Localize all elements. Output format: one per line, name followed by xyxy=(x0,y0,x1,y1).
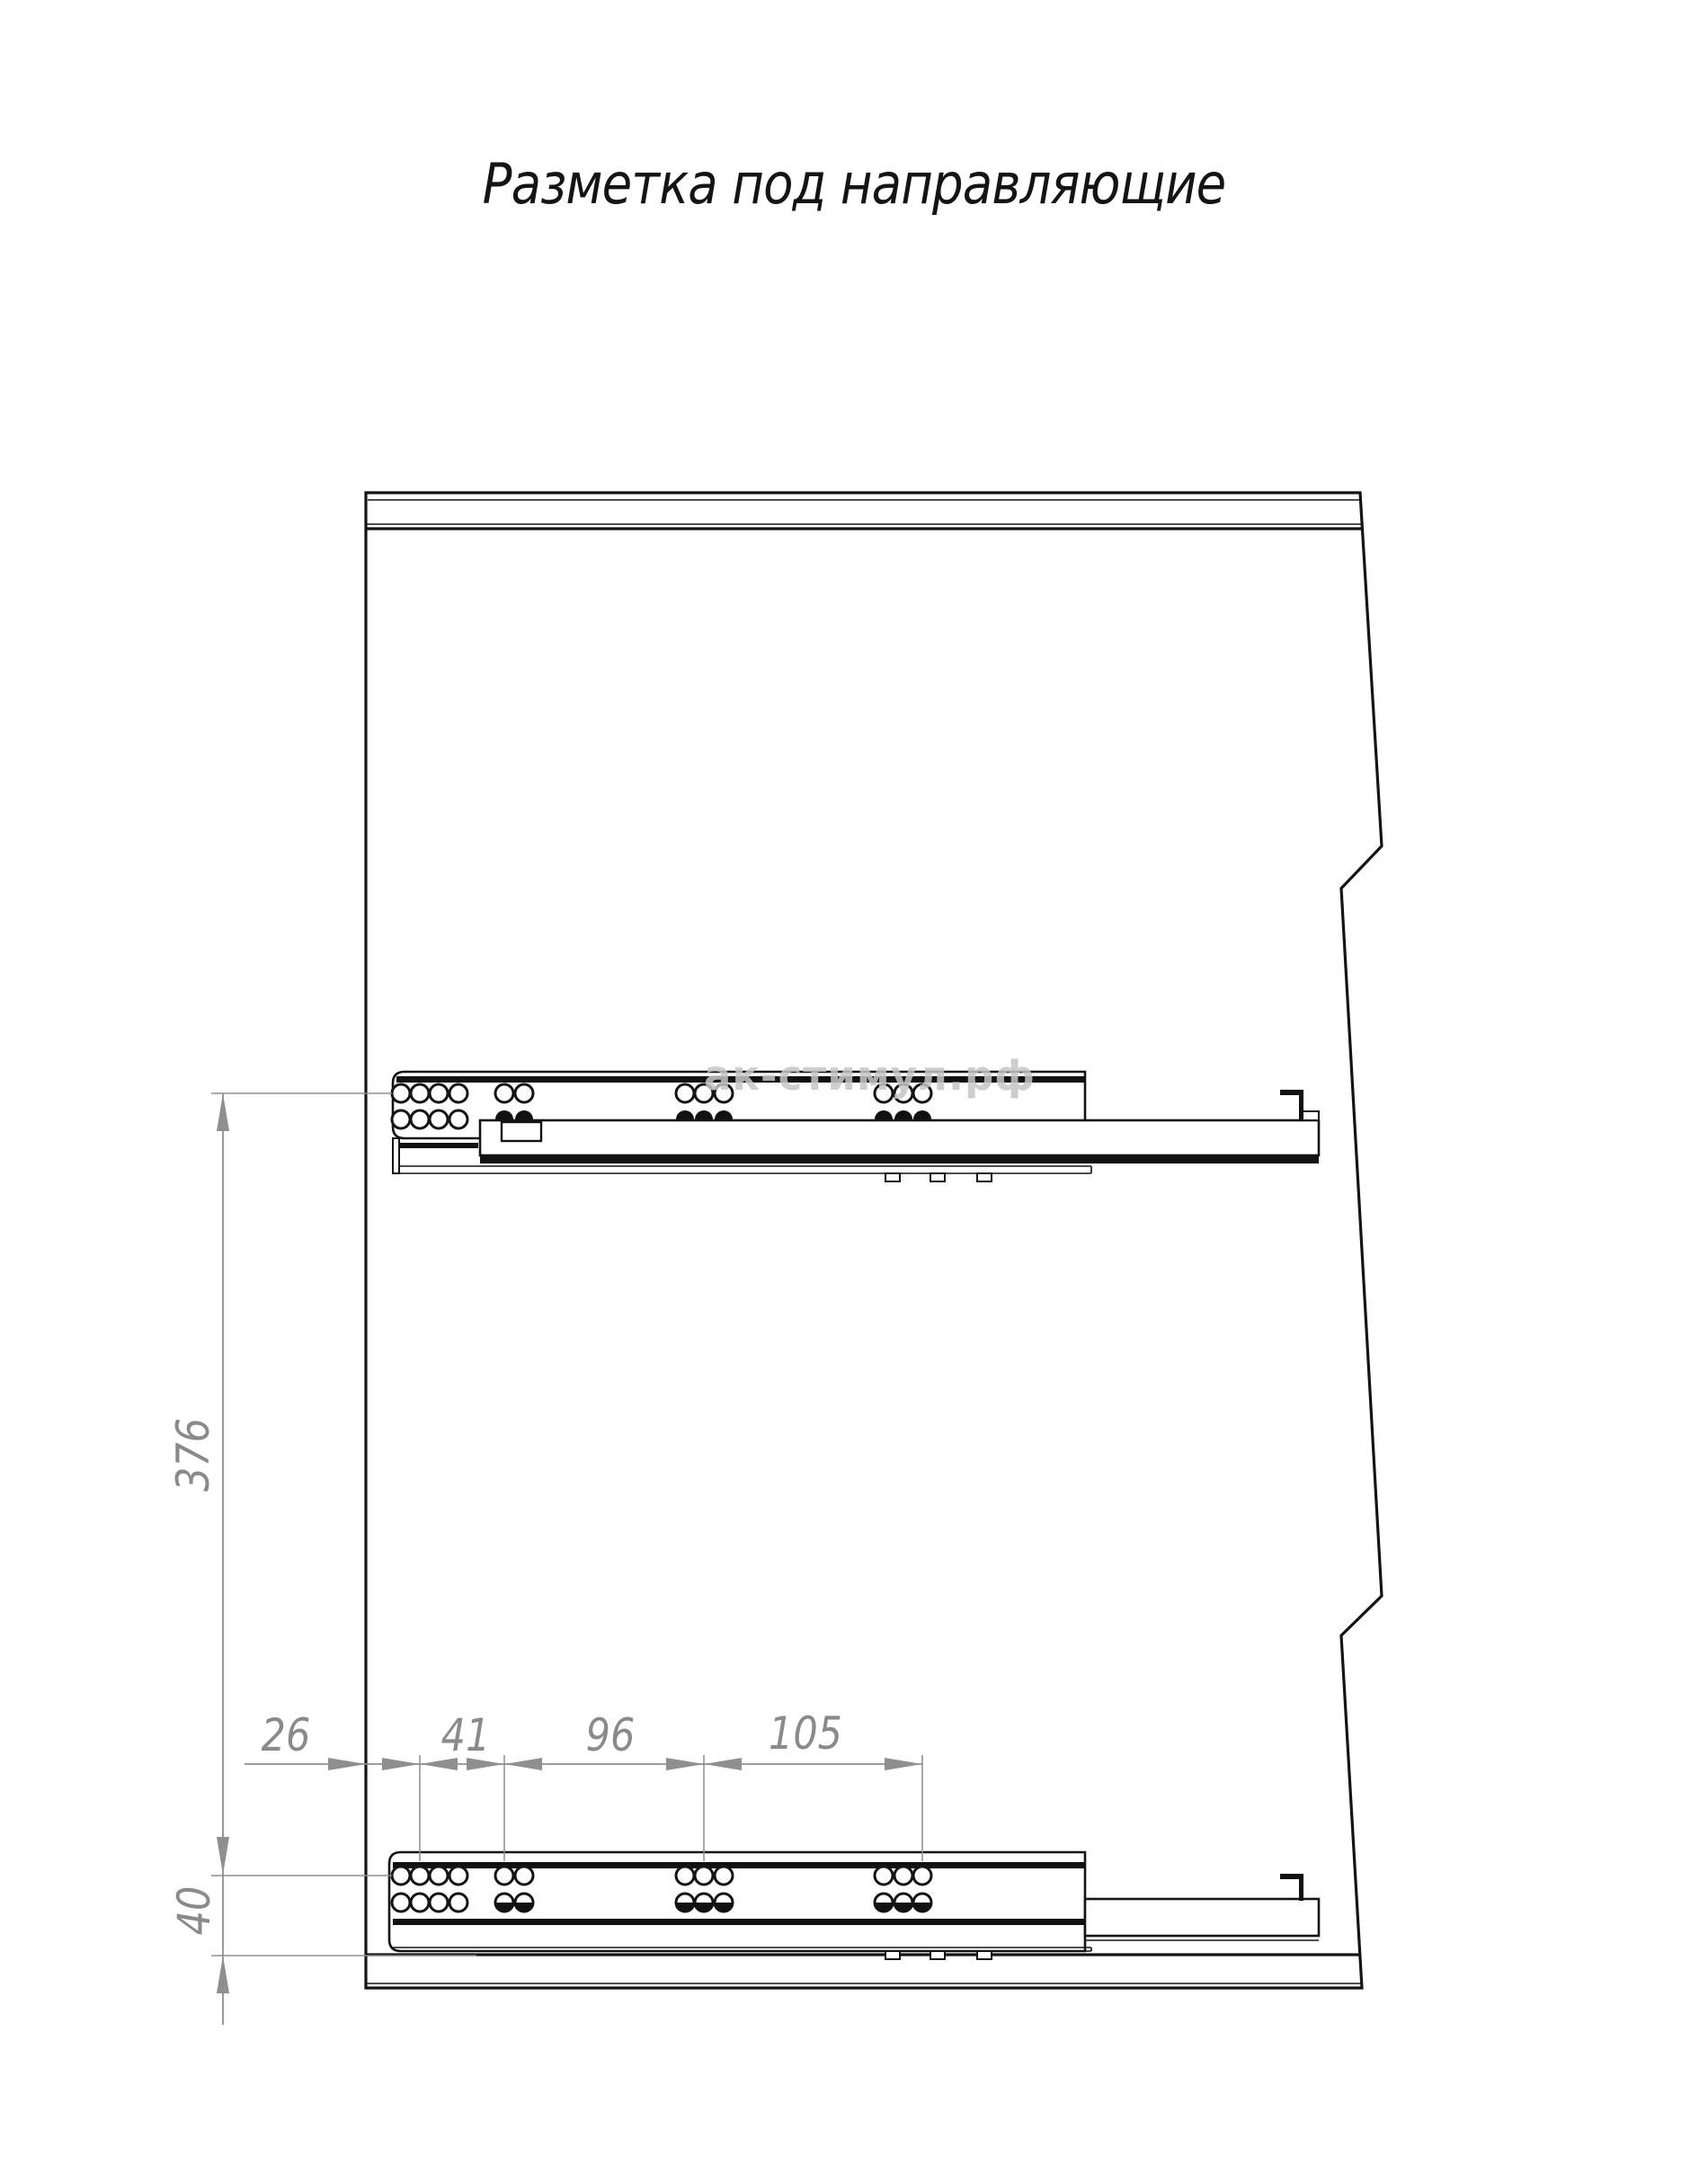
screw-hole xyxy=(495,1867,513,1885)
screw-hole xyxy=(411,1867,429,1885)
technical-drawing-page: Разметка под направляющие ак-стимул.рф 2… xyxy=(0,0,1708,2157)
screw-hole xyxy=(392,1084,410,1102)
screw-hole xyxy=(515,1084,533,1102)
screw-hole xyxy=(430,1110,448,1128)
screw-hole xyxy=(449,1084,467,1102)
screw-hole xyxy=(676,1867,694,1885)
dim-label-40: 40 xyxy=(168,1864,220,1956)
screw-hole xyxy=(515,1867,533,1885)
drawer-rail xyxy=(480,1120,1319,1155)
screw-hole xyxy=(894,1867,912,1885)
screw-hole xyxy=(449,1867,467,1885)
drawer-rail-tongue xyxy=(1085,1899,1319,1936)
drawer-rail-bottom-stripe xyxy=(480,1155,1319,1163)
screw-hole xyxy=(449,1110,467,1128)
drawing-title: Разметка под направляющие xyxy=(102,151,1606,217)
slide-plate-stripe xyxy=(399,1143,478,1148)
screw-hole xyxy=(411,1110,429,1128)
screw-hole xyxy=(430,1084,448,1102)
screw-hole xyxy=(430,1894,448,1912)
slide-left-cap xyxy=(393,1138,399,1173)
dim-label-105: 105 xyxy=(748,1707,864,1760)
watermark-text: ак-стимул.рф xyxy=(704,1052,1036,1100)
screw-hole xyxy=(449,1894,467,1912)
dim-label-376: 376 xyxy=(167,1397,219,1513)
drawer-rail-step xyxy=(1302,1111,1319,1120)
rail-clip xyxy=(502,1122,541,1141)
slide-top-stripe xyxy=(393,1862,1085,1868)
screw-hole xyxy=(715,1867,733,1885)
screw-hole xyxy=(411,1084,429,1102)
screw-hole xyxy=(392,1894,410,1912)
screw-hole xyxy=(875,1867,893,1885)
slide-bottom-stripe xyxy=(393,1919,1085,1925)
screw-hole xyxy=(495,1084,513,1102)
screw-hole xyxy=(392,1867,410,1885)
dim-label-41: 41 xyxy=(427,1709,504,1761)
screw-hole xyxy=(411,1894,429,1912)
screw-hole xyxy=(695,1867,713,1885)
screw-hole xyxy=(430,1867,448,1885)
screw-hole xyxy=(913,1867,931,1885)
dim-label-96: 96 xyxy=(572,1709,649,1761)
dim-label-26: 26 xyxy=(247,1709,325,1761)
screw-hole xyxy=(676,1084,694,1102)
screw-hole xyxy=(392,1110,410,1128)
